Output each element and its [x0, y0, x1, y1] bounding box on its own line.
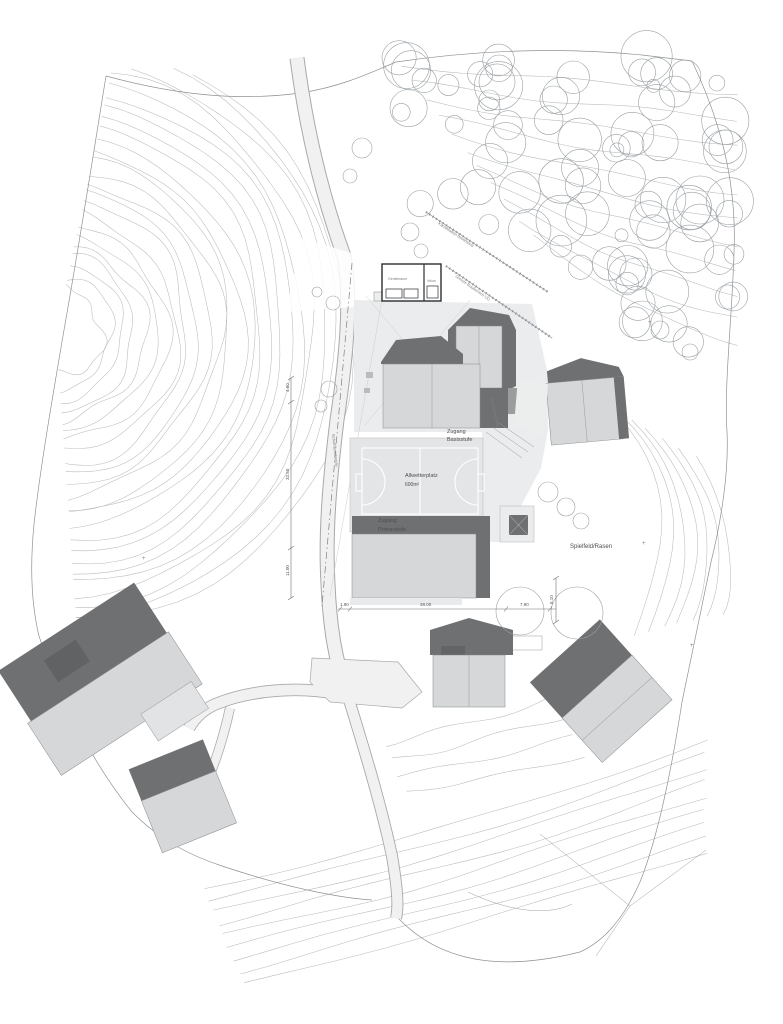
label-allwetterplatz: Allwetterplatz [405, 473, 438, 479]
tree-canopy-icon [642, 125, 678, 161]
contour-line [64, 227, 174, 439]
contour-line [407, 757, 585, 791]
contour-line [63, 247, 151, 425]
spot-height-mark: + [648, 320, 652, 326]
label-zugang-primarstufe: Zugang [378, 518, 397, 524]
contour-line [220, 780, 705, 927]
road-surface [297, 58, 348, 690]
tree-canopy-icon [414, 244, 428, 258]
contour-line [67, 184, 213, 484]
contour-line [205, 740, 708, 889]
tree-canopy-icon [651, 306, 687, 342]
label-building-limit: Grenze Baubereich UG [454, 274, 491, 302]
tree-canopy-icon [705, 245, 734, 274]
contour-line [59, 284, 108, 375]
tree-canopy-icon [666, 225, 714, 273]
label-spielfeld: Spielfeld/Rasen [570, 544, 612, 550]
contour-line [227, 809, 704, 947]
shed-room-label: Velos [427, 279, 436, 283]
road-junction [310, 658, 422, 708]
tree-canopy-icon [460, 170, 495, 205]
shed-step [374, 292, 382, 301]
dimension-value: 1.90 [340, 602, 349, 607]
contour-line [678, 448, 719, 616]
contour-line [427, 100, 738, 145]
contour-line [401, 66, 737, 95]
contour-line [439, 115, 735, 170]
contour-line [63, 235, 158, 431]
contour-line [223, 798, 707, 933]
tree-canopy-icon [676, 176, 724, 224]
tree-canopy-icon [401, 223, 419, 241]
road-surface [189, 690, 338, 728]
tree-canopy-icon [608, 246, 648, 286]
tree-canopy-icon [646, 270, 689, 313]
contour-line [68, 176, 227, 500]
dimension-value: 38.00 [420, 602, 432, 607]
contour-line [66, 190, 199, 472]
boundary-line [32, 76, 106, 636]
contour-line [504, 199, 737, 296]
tree-canopy-icon [637, 215, 670, 248]
spot-height-mark: + [642, 541, 646, 547]
contour-line [241, 836, 707, 974]
dimension-value: 11.00 [285, 565, 290, 576]
tree-canopy-icon [472, 143, 507, 178]
dimension-left: 4.50 32.50 11.00 [285, 376, 294, 600]
tree-canopy-icon [390, 90, 427, 127]
contour-line [392, 719, 567, 758]
apron [350, 598, 462, 605]
tree-canopy-icon [479, 215, 499, 235]
pavilion [500, 506, 534, 542]
tree-canopy-icon [621, 31, 672, 82]
tree-canopy-icon [557, 498, 575, 516]
shed-room-label: Geräteraum [388, 277, 407, 281]
tree-canopy-icon [593, 247, 627, 281]
label-allwetterplatz-area: 600m² [405, 482, 420, 488]
tree-canopy-icon [384, 43, 430, 89]
school-building-east [544, 355, 629, 445]
contour-line [662, 438, 707, 621]
tree-canopy-icon [539, 159, 584, 204]
tree-canopy-icon [392, 103, 410, 121]
tree-canopy-icon [540, 86, 567, 113]
contour-line [209, 752, 705, 901]
contour-line [413, 80, 737, 121]
label-utility-line: Kanalisation bestehend [437, 221, 474, 248]
label-zugang-basisstufe: Basisstufe [447, 437, 472, 443]
parcel-line [468, 834, 706, 956]
tree-canopy-icon [621, 286, 655, 320]
contour-line [65, 201, 185, 466]
site-plan-drawing: Geräteraum Velos 1.90 38.00 7.90 [0, 0, 783, 1024]
tree-canopy-icon [382, 41, 416, 75]
tree-canopy-icon [568, 255, 592, 279]
boundary-line [106, 62, 396, 97]
contour-line [70, 139, 256, 529]
tree-canopy-icon [538, 482, 558, 502]
building-body [352, 534, 476, 598]
tree-canopy-icon [343, 169, 357, 183]
dimension-value: 7.90 [520, 602, 529, 607]
tree-canopy-icon [352, 138, 372, 158]
contour-line [213, 770, 706, 911]
boundary-line [398, 918, 580, 962]
dimension-right: 6.10 [549, 576, 559, 624]
contour-line [632, 420, 685, 626]
contour-line [64, 210, 181, 449]
contour-line [62, 253, 133, 413]
tree-canopy-icon [558, 118, 602, 162]
tree-canopy-icon [566, 192, 610, 236]
tree-canopy-icon [673, 327, 703, 357]
dimension-value: 32.50 [285, 468, 290, 480]
spot-height-mark: + [690, 643, 694, 649]
contour-line [645, 428, 698, 623]
contour-line [76, 68, 336, 618]
contour-line [72, 105, 280, 564]
building-body [383, 364, 480, 428]
contour-line [69, 157, 227, 511]
bench [364, 388, 370, 393]
tree-canopy-icon [619, 132, 644, 157]
tree-canopy-icon [496, 587, 544, 635]
tree-canopy-icon [542, 77, 579, 114]
tree-canopy-icon [478, 97, 500, 119]
contour-line [477, 166, 739, 247]
contour-line [75, 73, 315, 599]
road-surface [346, 690, 397, 918]
tree-canopy-icon [438, 179, 469, 210]
dimension-value: 4.50 [285, 383, 290, 392]
tree-canopy-icon [573, 513, 589, 529]
spot-height-mark: + [142, 556, 146, 562]
contour-line [71, 126, 260, 541]
existing-house-east [530, 619, 672, 762]
contour-line [61, 266, 123, 404]
contour-line [397, 735, 572, 777]
tree-canopy-icon [508, 209, 551, 252]
contour-line [71, 116, 271, 551]
tree-canopy-icon [640, 177, 685, 222]
tree-canopy-icon [615, 229, 628, 242]
tree-canopy-icon [407, 191, 433, 217]
tree-canopy-icon [623, 301, 663, 341]
contour-line [234, 822, 705, 961]
label-zugang-primarstufe: Primarstufe [378, 527, 406, 533]
shed-plan: Geräteraum Velos [374, 264, 441, 301]
tree-canopy-icon [619, 307, 650, 338]
tree-canopy-icon [639, 84, 675, 120]
tree-canopy-icon [709, 75, 725, 91]
tree-canopy-icon [641, 58, 673, 90]
tree-canopy-icon [681, 204, 719, 242]
dimension-value: 6.10 [549, 595, 554, 604]
tree-canopy-icon [682, 344, 698, 360]
tree-canopy-icon [486, 123, 526, 163]
label-zugang-basisstufe: Zugang [447, 429, 466, 435]
existing-house-center [430, 618, 513, 707]
site-plan-page: Geräteraum Velos 1.90 38.00 7.90 [0, 0, 783, 1024]
boundary-line [682, 61, 734, 702]
gym-building [350, 516, 490, 605]
tree-canopy-icon [551, 587, 603, 639]
tree-canopy-icon [486, 55, 513, 82]
tree-canopy-icon [716, 285, 740, 309]
tree-canopy-icon [629, 59, 656, 86]
bench [366, 372, 373, 378]
tree-canopy-icon [706, 178, 753, 225]
tree-canopy-icon [499, 172, 541, 214]
contour-line [60, 279, 115, 393]
tree-canopy-icon [610, 143, 624, 157]
